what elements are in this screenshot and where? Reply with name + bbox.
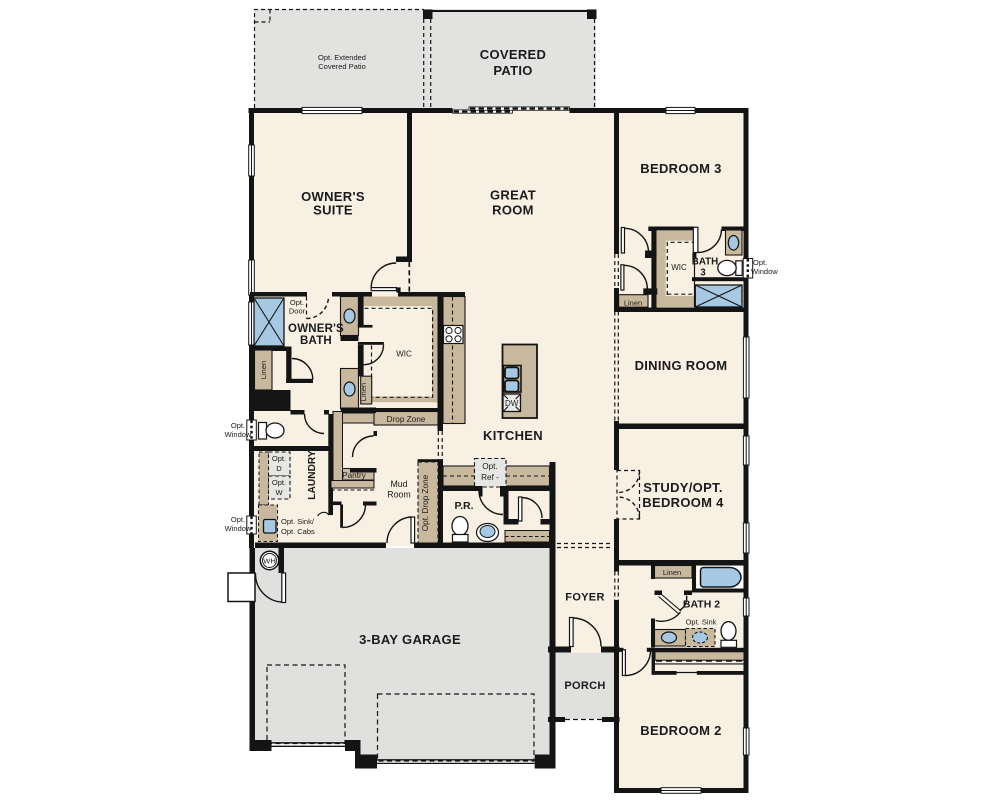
svg-text:Covered Patio: Covered Patio <box>318 62 366 71</box>
svg-text:Opt. Drop Zone: Opt. Drop Zone <box>421 474 430 531</box>
svg-text:DINING ROOM: DINING ROOM <box>635 358 728 373</box>
svg-text:Window: Window <box>225 524 252 533</box>
svg-text:Window: Window <box>751 267 778 276</box>
svg-text:Room: Room <box>387 490 410 500</box>
svg-text:COVERED: COVERED <box>480 47 546 62</box>
svg-text:OWNER'S: OWNER'S <box>288 323 344 335</box>
svg-text:Opt.: Opt. <box>231 421 245 430</box>
svg-text:Opt.: Opt. <box>753 258 767 267</box>
svg-text:Opt. Cabs: Opt. Cabs <box>281 527 315 536</box>
svg-text:Door: Door <box>289 307 306 316</box>
svg-text:Opt.: Opt. <box>272 478 286 487</box>
svg-text:P.R.: P.R. <box>454 500 473 512</box>
svg-text:Window: Window <box>225 430 252 439</box>
svg-text:WIC: WIC <box>396 350 412 359</box>
svg-text:Opt.: Opt. <box>482 462 497 471</box>
svg-text:Linen: Linen <box>359 383 368 401</box>
svg-text:DW: DW <box>505 399 519 408</box>
svg-text:LAUNDRY: LAUNDRY <box>307 450 318 500</box>
svg-text:GREAT: GREAT <box>490 188 536 203</box>
svg-text:BATH: BATH <box>300 335 332 347</box>
svg-text:BEDROOM 4: BEDROOM 4 <box>642 495 724 510</box>
svg-text:3: 3 <box>700 268 706 279</box>
svg-text:SUITE: SUITE <box>313 203 353 218</box>
svg-text:Opt.: Opt. <box>231 515 245 524</box>
svg-text:WH: WH <box>263 557 276 566</box>
svg-text:D: D <box>276 464 282 473</box>
svg-text:FOYER: FOYER <box>565 592 604 604</box>
svg-text:Opt. Sink: Opt. Sink <box>686 618 717 627</box>
svg-text:PORCH: PORCH <box>564 680 605 692</box>
svg-text:Linen: Linen <box>663 568 681 577</box>
svg-text:Opt. Sink/: Opt. Sink/ <box>281 517 315 526</box>
svg-text:BATH 2: BATH 2 <box>683 599 720 611</box>
svg-text:BEDROOM 3: BEDROOM 3 <box>640 161 721 176</box>
svg-text:Opt. Extended: Opt. Extended <box>318 53 366 62</box>
svg-text:Linen: Linen <box>624 299 642 308</box>
svg-text:Ref -: Ref - <box>481 473 499 482</box>
svg-text:STUDY/OPT.: STUDY/OPT. <box>643 480 723 495</box>
svg-text:PATIO: PATIO <box>493 63 532 78</box>
svg-text:BATH: BATH <box>692 257 718 268</box>
svg-text:Opt.: Opt. <box>272 454 286 463</box>
svg-text:Pantry: Pantry <box>342 471 367 480</box>
svg-text:ROOM: ROOM <box>492 203 534 218</box>
svg-text:W: W <box>275 488 283 497</box>
svg-text:WIC: WIC <box>671 263 687 272</box>
svg-text:3-BAY GARAGE: 3-BAY GARAGE <box>359 632 461 647</box>
svg-text:Drop Zone: Drop Zone <box>387 415 426 424</box>
svg-text:KITCHEN: KITCHEN <box>483 428 543 443</box>
svg-text:Linen: Linen <box>259 361 268 379</box>
svg-text:BEDROOM 2: BEDROOM 2 <box>640 723 721 738</box>
svg-text:Mud: Mud <box>390 479 407 489</box>
